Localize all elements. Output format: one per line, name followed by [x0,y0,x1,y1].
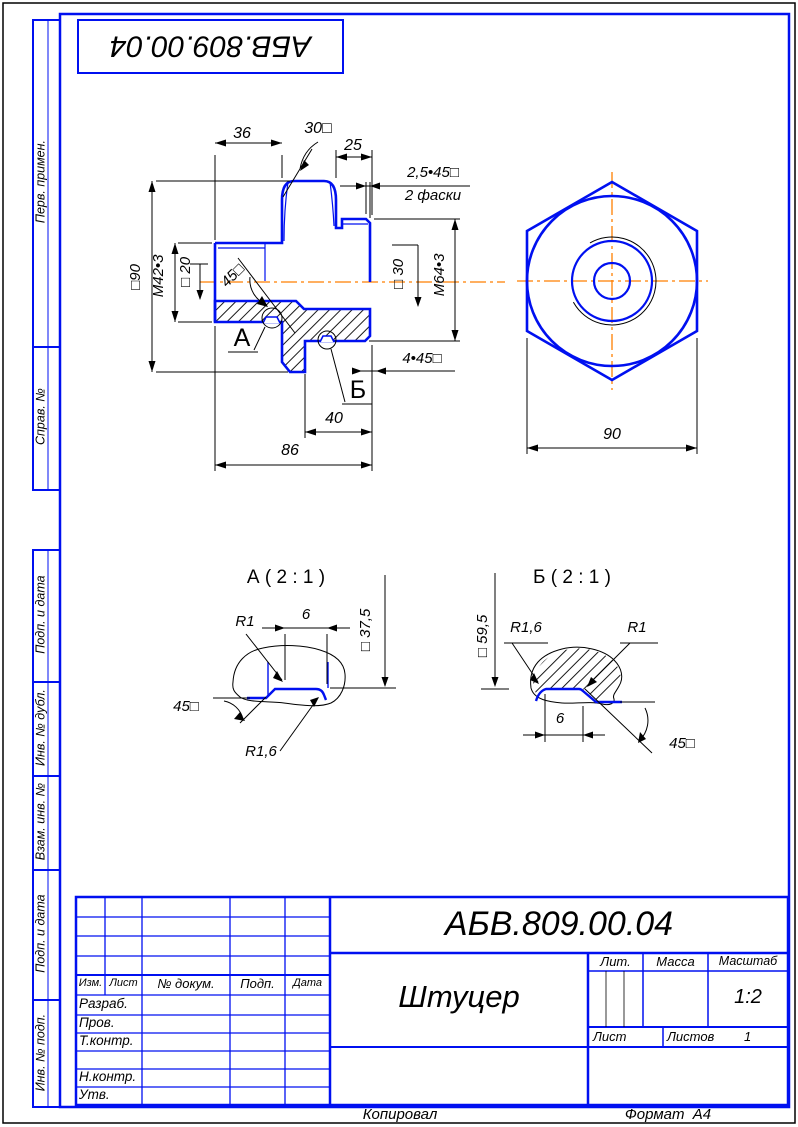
centerlines [517,172,708,390]
tb-row-utv: Утв. [79,1088,110,1102]
dim-chamfer-2-5x45: 2,5•45□ [396,165,470,181]
tb-row-prov: Пров. [79,1016,115,1030]
hex-chamfer-arcs [284,182,334,241]
footer-copied: Копировал [340,1107,460,1123]
detail-a-r1-6: R1,6 [238,744,284,760]
tb-sheet-label: Лист [593,1030,626,1044]
top-stamp-doc-number: АБВ.809.00.04 [78,30,343,62]
margin-label-podp-data-1: Подп. и дата [34,550,47,680]
detail-b-6: 6 [548,711,572,727]
tb-row-razrab: Разраб. [79,997,128,1011]
dim-40: 40 [314,411,354,428]
dim-hex-90: 90 [592,427,632,444]
callout-label-a: А [228,325,256,351]
tb-row-nkontr: Н.контр. [79,1070,136,1084]
margin-label-inv-dubl: Инв. № дубл. [34,682,47,774]
tb-sheets-value: 1 [744,1030,751,1044]
dim-dia-90: □90 [128,247,144,307]
tb-sheets-label: Листов [667,1030,714,1044]
groove-profile [247,689,326,700]
groove-b [320,336,334,342]
dim-thread-m64: М64•3 [432,237,448,313]
tb-col-izm: Изм. [76,978,105,990]
dim-36: 36 [222,126,262,143]
tb-col-list: Лист [105,978,142,990]
tb-doc-number: АБВ.809.00.04 [330,907,788,943]
detail-b-dia-59-5: □ 59,5 [475,598,491,674]
tb-col-podp: Подп. [230,977,285,991]
margin-label-podp-data-2: Подп. и дата [34,870,47,998]
detail-a-6: 6 [294,607,318,623]
tb-part-name: Штуцер [330,981,588,1014]
dim-dia-20: □ 20 [178,244,194,300]
detail-a-45deg: 45□ [166,699,206,715]
detail-b-r1-6: R1,6 [503,620,549,636]
drawing-sheet: АБВ.809.00.04 Перв. примен. Справ. № Под… [0,0,798,1127]
tb-scale-label: Масштаб [708,955,788,968]
margin-label-inv-podp: Инв. № подп. [34,1001,47,1105]
margin-label-sprav-no: Справ. № [34,347,47,487]
dim-25: 25 [333,138,373,155]
detail-b-title: Б ( 2 : 1 ) [502,568,642,588]
dim-86: 86 [270,443,310,460]
dim-thread-m42: М42•3 [151,238,167,314]
hex-end-view [517,172,708,454]
detail-hatch [533,648,621,701]
dim-chamfer-4x45: 4•45□ [392,351,452,367]
tb-mass-label: Масса [643,955,708,969]
dim-dia-30: □ 30 [391,246,407,302]
dim-30deg: 30□ [296,121,340,138]
dim-chamfer-note: 2 фаски [396,188,470,204]
detail-a-title: А ( 2 : 1 ) [216,568,356,588]
detail-b-r1: R1 [620,620,654,636]
margin-label-perv-primen: Перв. примен. [34,32,47,332]
tb-scale-value: 1:2 [708,987,788,1008]
detail-a-r1: R1 [228,614,262,630]
detail-b-45deg: 45□ [660,736,704,752]
tb-col-docum: № докум. [142,977,230,991]
margin-label-vzam-inv: Взам. инв. № [34,776,47,868]
tb-lit-label: Лит. [588,955,643,969]
footer-format: Формат А4 [608,1107,728,1123]
detail-a-dia-37-5: □ 37,5 [358,592,374,668]
groove-a [263,317,280,323]
tb-col-data: Дата [285,978,330,990]
tb-row-tkontr: Т.контр. [79,1034,133,1048]
callout-label-b: Б [344,377,372,403]
